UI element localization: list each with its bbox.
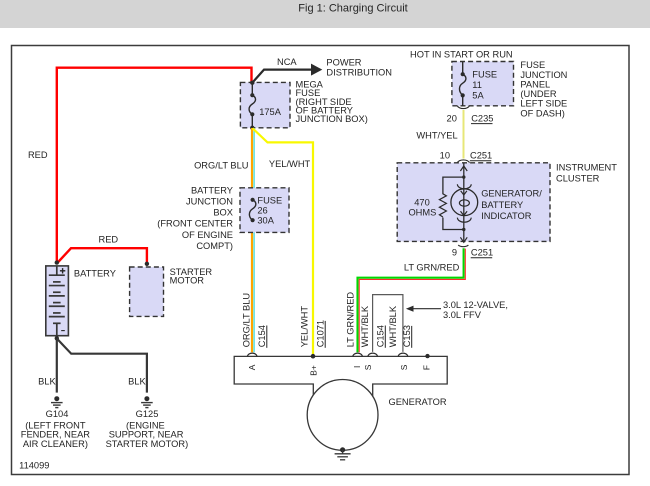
- svg-text:G104: G104: [46, 409, 69, 419]
- svg-text:LT GRN/RED: LT GRN/RED: [404, 262, 460, 272]
- svg-text:C251: C251: [470, 151, 492, 161]
- svg-text:BATTERY: BATTERY: [191, 185, 233, 195]
- svg-text:STARTER MOTOR): STARTER MOTOR): [106, 439, 189, 449]
- svg-text:20: 20: [447, 113, 457, 123]
- svg-text:30A: 30A: [257, 216, 274, 226]
- svg-text:175A: 175A: [259, 107, 282, 117]
- svg-text:GENERATOR: GENERATOR: [389, 397, 447, 407]
- svg-text:(UNDER: (UNDER: [520, 89, 556, 99]
- svg-text:YEL/WHT: YEL/WHT: [300, 306, 310, 348]
- svg-text:I: I: [352, 366, 362, 368]
- svg-text:JUNCTION BOX): JUNCTION BOX): [296, 114, 368, 124]
- svg-text:MOTOR: MOTOR: [170, 276, 205, 286]
- svg-text:GENERATOR/: GENERATOR/: [481, 189, 542, 199]
- svg-text:JUNCTION: JUNCTION: [186, 197, 233, 207]
- svg-text:BLK: BLK: [38, 376, 56, 386]
- svg-text:YEL/WHT: YEL/WHT: [269, 159, 311, 169]
- svg-text:C235: C235: [471, 113, 493, 123]
- svg-text:FUSE: FUSE: [257, 195, 282, 205]
- svg-text:B+: B+: [308, 365, 318, 376]
- svg-text:HOT IN START OR RUN: HOT IN START OR RUN: [410, 49, 513, 59]
- svg-text:OHMS: OHMS: [408, 207, 436, 217]
- svg-text:WHT/YEL: WHT/YEL: [416, 131, 457, 141]
- svg-text:BATTERY: BATTERY: [481, 200, 523, 210]
- svg-text:FUSE: FUSE: [472, 69, 497, 79]
- svg-text:NCA: NCA: [277, 57, 297, 67]
- svg-text:ORG/LT BLU: ORG/LT BLU: [241, 293, 251, 347]
- svg-text:POWER: POWER: [326, 57, 361, 67]
- svg-text:BLK: BLK: [128, 376, 146, 386]
- svg-text:AIR CLEANER): AIR CLEANER): [23, 439, 88, 449]
- svg-text:5A: 5A: [472, 91, 484, 101]
- svg-text:C154: C154: [257, 325, 267, 347]
- svg-text:Fig 1: Charging Circuit: Fig 1: Charging Circuit: [298, 2, 407, 14]
- svg-text:DISTRIBUTION: DISTRIBUTION: [326, 67, 392, 77]
- svg-text:RED: RED: [28, 150, 48, 160]
- svg-text:LT GRN/RED: LT GRN/RED: [346, 292, 356, 348]
- svg-text:S: S: [363, 364, 373, 370]
- svg-text:C1071: C1071: [316, 320, 326, 347]
- svg-text:C251: C251: [471, 248, 493, 258]
- svg-text:JUNCTION: JUNCTION: [520, 70, 567, 80]
- svg-text:LEFT SIDE: LEFT SIDE: [520, 99, 567, 109]
- svg-text:A: A: [247, 364, 257, 370]
- svg-text:9: 9: [452, 248, 457, 258]
- svg-text:3.0L FFV: 3.0L FFV: [443, 310, 482, 320]
- svg-text:WHT/BLK: WHT/BLK: [360, 305, 370, 347]
- svg-text:FUSE: FUSE: [520, 60, 545, 70]
- svg-text:OF ENGINE: OF ENGINE: [182, 230, 233, 240]
- svg-text:S: S: [399, 364, 409, 370]
- svg-text:WHT/BLK: WHT/BLK: [388, 305, 398, 347]
- svg-text:11: 11: [472, 80, 482, 90]
- svg-text:G125: G125: [136, 409, 159, 419]
- svg-text:COMPT): COMPT): [196, 241, 233, 251]
- svg-text:INSTRUMENT: INSTRUMENT: [556, 163, 617, 173]
- svg-text:C153: C153: [402, 325, 412, 347]
- svg-text:10: 10: [440, 151, 450, 161]
- svg-text:470: 470: [414, 197, 430, 207]
- svg-text:INDICATOR: INDICATOR: [481, 211, 532, 221]
- svg-text:CLUSTER: CLUSTER: [556, 174, 600, 184]
- svg-text:C154: C154: [376, 325, 386, 347]
- svg-text:114099: 114099: [19, 461, 49, 471]
- svg-text:ORG/LT BLU: ORG/LT BLU: [194, 160, 248, 170]
- svg-text:26: 26: [257, 205, 267, 215]
- svg-text:PANEL: PANEL: [520, 80, 550, 90]
- svg-text:BOX: BOX: [213, 208, 233, 218]
- svg-text:BATTERY: BATTERY: [74, 269, 116, 279]
- svg-text:(FRONT CENTER: (FRONT CENTER: [157, 219, 233, 229]
- svg-text:OF DASH): OF DASH): [520, 108, 564, 118]
- svg-text:RED: RED: [99, 235, 119, 245]
- svg-text:F: F: [421, 365, 431, 370]
- svg-text:3.0L 12-VALVE,: 3.0L 12-VALVE,: [443, 300, 508, 310]
